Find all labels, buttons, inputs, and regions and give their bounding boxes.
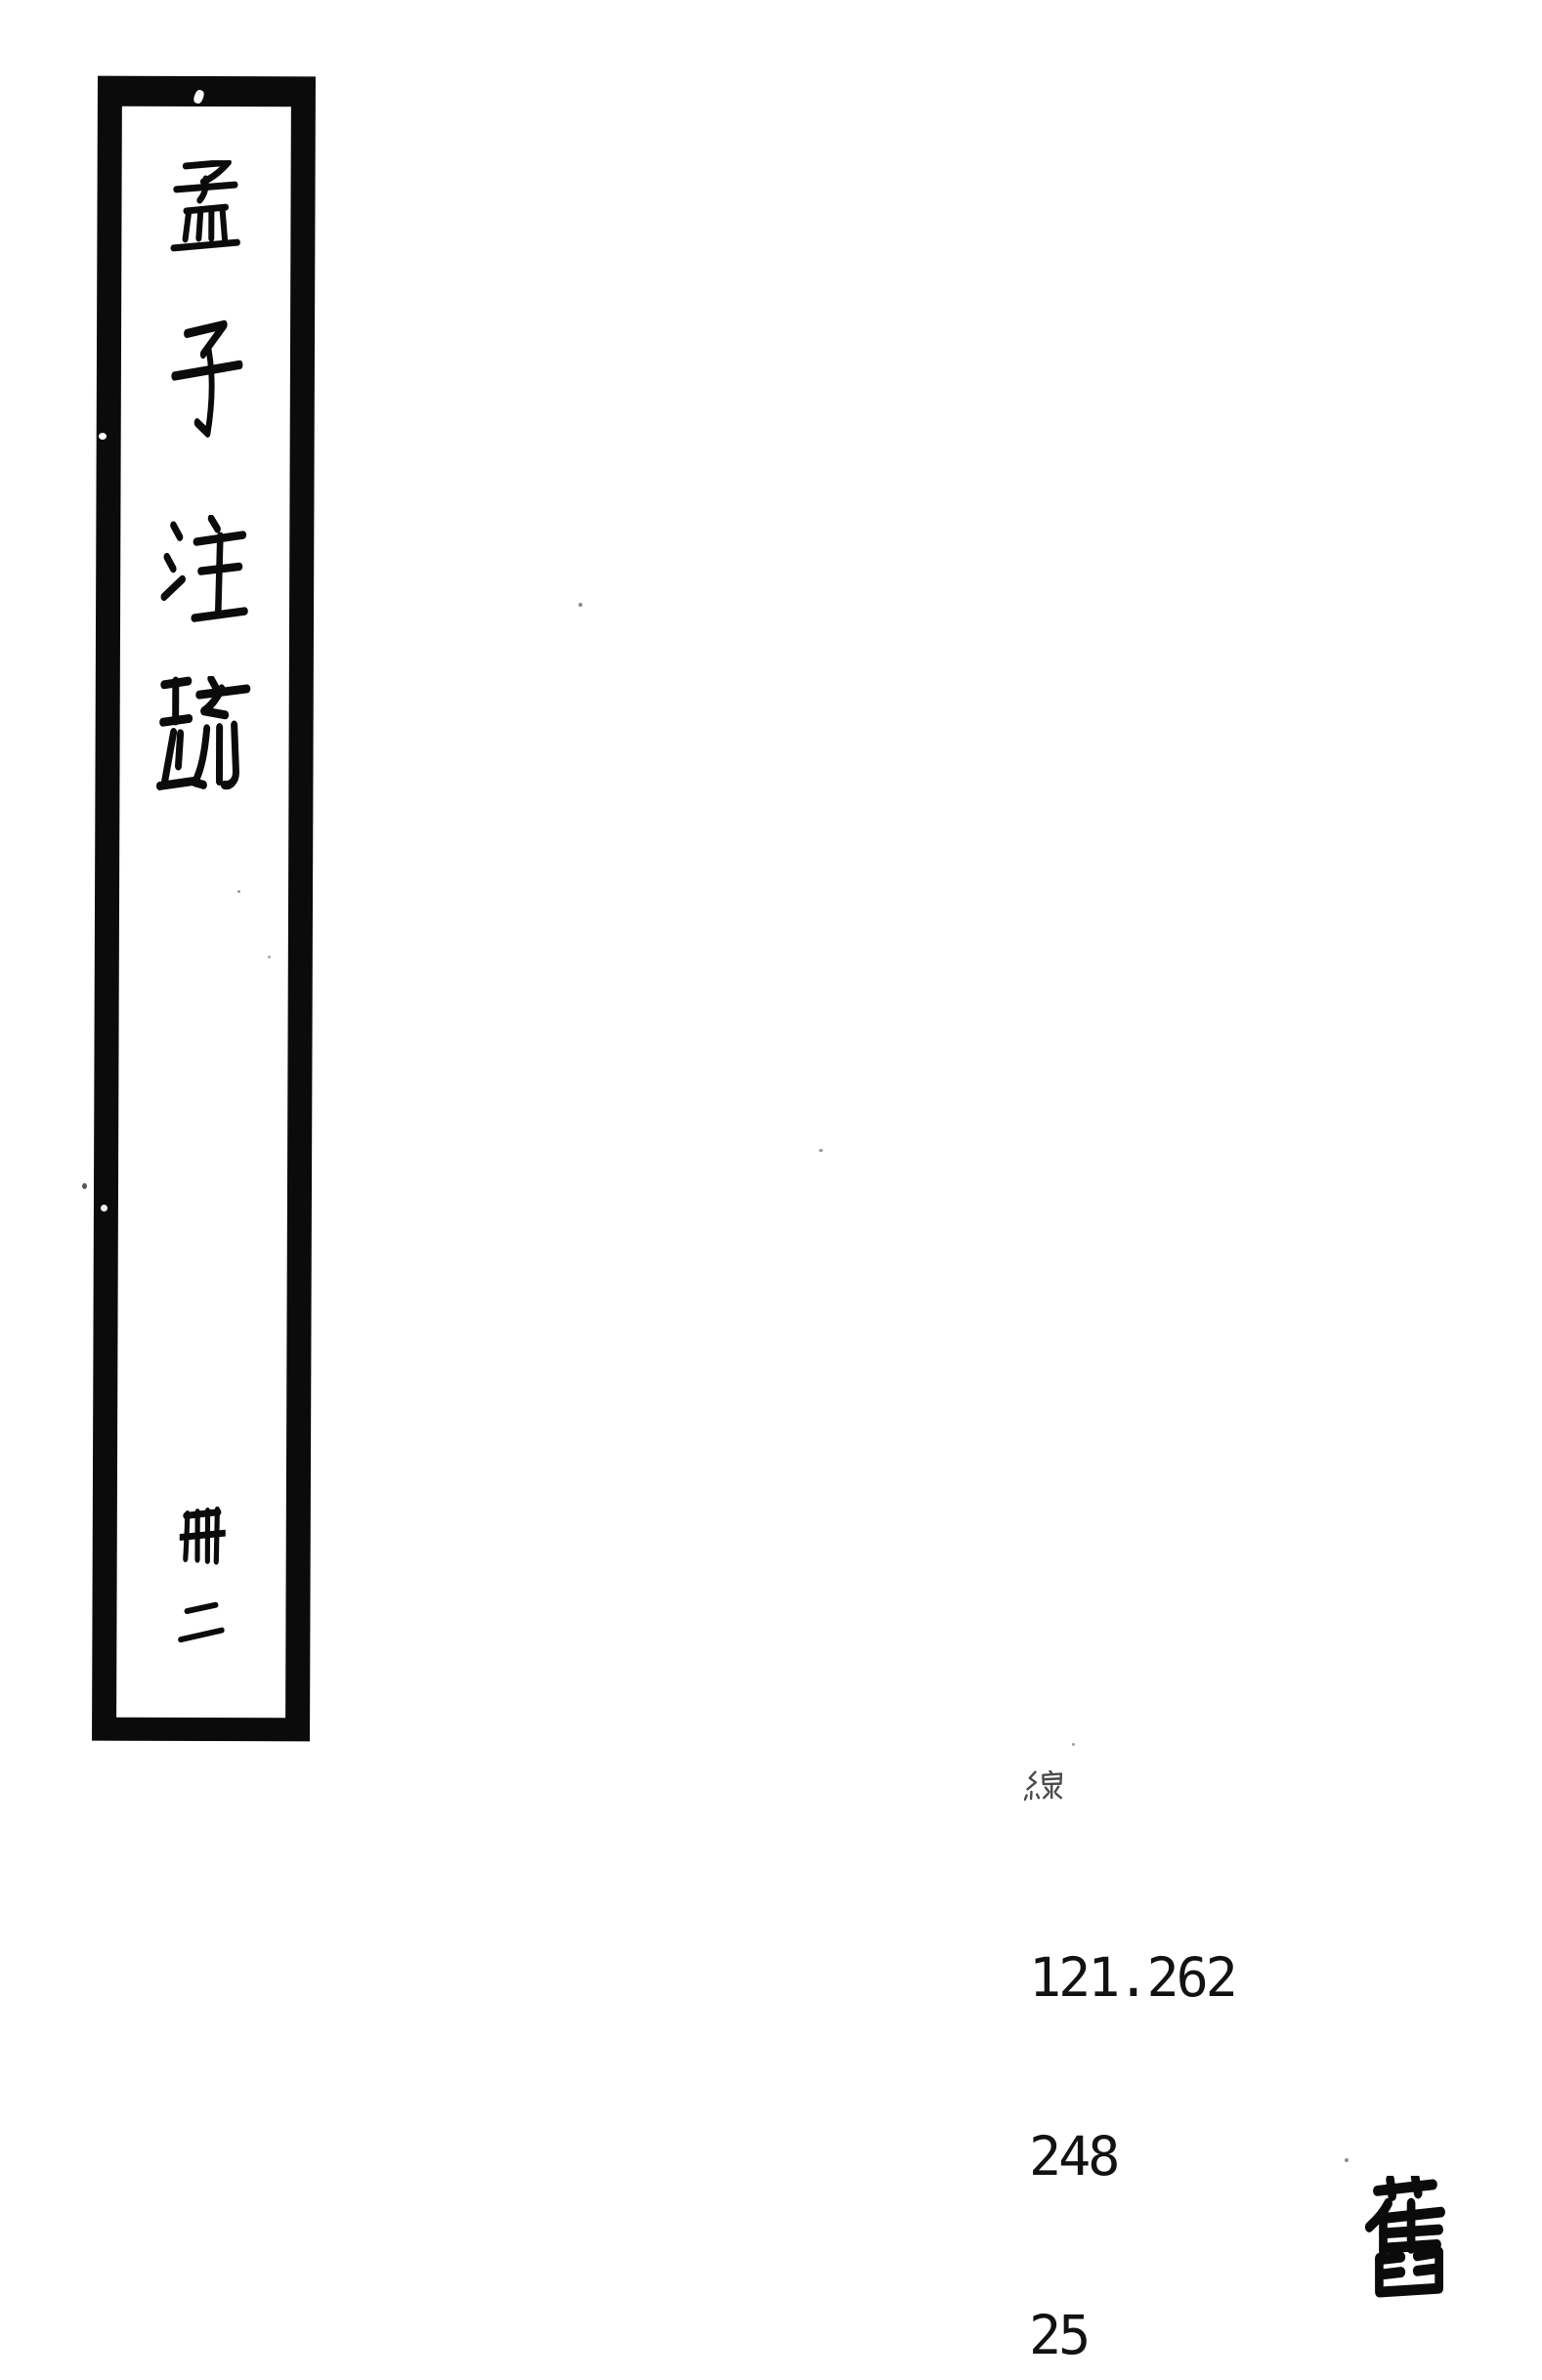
- scan-speck: [82, 1183, 87, 1189]
- scan-speck: [578, 603, 582, 607]
- spine-title-char-zhu: [159, 515, 251, 632]
- zhu-glyph-drawing: [159, 515, 251, 632]
- shu-glyph-drawing: [154, 676, 252, 801]
- scan-speck: [99, 433, 107, 440]
- call-number-line-3: 25: [1029, 2306, 1235, 2365]
- call-number-block: 121.262 248 25 v.2: [1029, 1829, 1235, 2380]
- spine-volume-char-ce: [180, 1507, 226, 1568]
- spine-title-char-shu: [154, 676, 252, 801]
- scanned-book-spine-page: 121.262 248 25 v.2: [0, 0, 1542, 2380]
- spine-volume-char-er: [177, 1596, 225, 1649]
- spine-title-char-meng: [162, 160, 246, 258]
- scan-speck: [268, 956, 271, 958]
- er-glyph-drawing: [177, 1596, 225, 1649]
- jiu-glyph-drawing: [1358, 2176, 1458, 2301]
- scan-speck: [237, 890, 240, 893]
- spine-label-inner: [116, 106, 291, 1719]
- stamp-char-jiu: [1358, 2176, 1458, 2301]
- meng-glyph-drawing: [162, 160, 246, 258]
- call-number-line-2: 248: [1029, 2127, 1235, 2187]
- call-number-classification-char: [1024, 1770, 1067, 1813]
- zi-glyph-drawing: [166, 319, 248, 448]
- xian-glyph-drawing: [1024, 1770, 1067, 1813]
- ce-glyph-drawing: [180, 1507, 226, 1568]
- scan-speck: [819, 1149, 823, 1152]
- scan-speck: [101, 1205, 107, 1211]
- call-number-line-1: 121.262: [1029, 1948, 1235, 2008]
- spine-title-char-zi: [166, 319, 248, 448]
- scan-speck: [1072, 1743, 1075, 1746]
- spine-label-frame: [92, 76, 316, 1742]
- scan-speck: [1345, 2158, 1349, 2162]
